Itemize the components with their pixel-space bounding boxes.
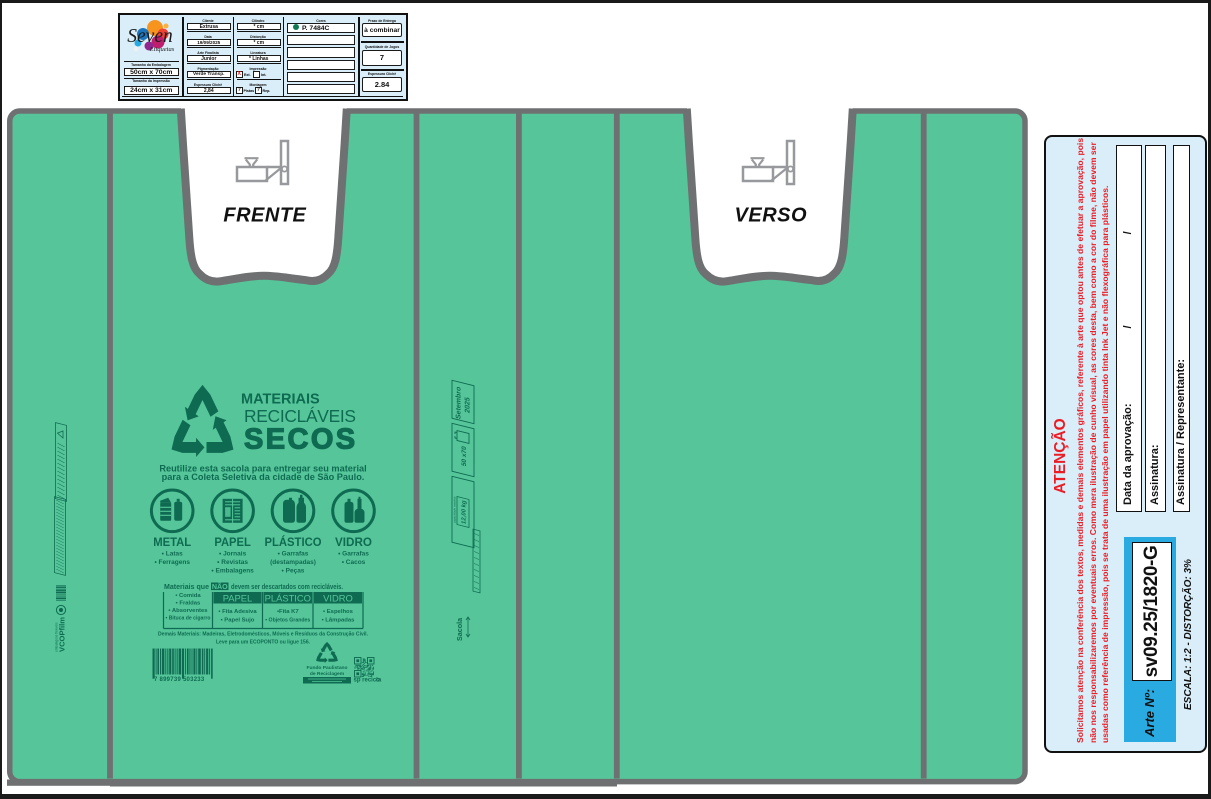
svg-text:• Lâmpadas: • Lâmpadas [322, 618, 356, 624]
svg-text:Materiais que: Materiais que [164, 582, 209, 591]
svg-text:FRENTE: FRENTE [223, 205, 306, 227]
svg-text:• Ferragens: • Ferragens [154, 559, 190, 566]
svg-text:• Fraldas: • Fraldas [176, 601, 201, 607]
svg-text:SECOS: SECOS [244, 424, 358, 456]
svg-text:para a Coleta Seletiva da cida: para a Coleta Seletiva da cidade de São … [162, 472, 365, 482]
svg-text:• Bituca de cigarro: • Bituca de cigarro [166, 616, 211, 622]
svg-text:50 x70: 50 x70 [461, 445, 468, 467]
svg-text:PLÁSTICO: PLÁSTICO [265, 593, 311, 604]
svg-text:embalagens flexiveis: embalagens flexiveis [55, 622, 59, 652]
svg-text:PAPEL: PAPEL [223, 593, 253, 604]
svg-text:• Peças: • Peças [282, 568, 305, 575]
svg-text:• Absorventes: • Absorventes [168, 608, 208, 614]
svg-text:METAL: METAL [153, 535, 191, 549]
svg-text:Leve para um ECOPONTO ou ligue: Leve para um ECOPONTO ou ligue 156. [216, 640, 311, 646]
svg-text:devem ser descartados com reci: devem ser descartados com recicláveis. [231, 582, 343, 591]
svg-text:Fundo Paulistano: Fundo Paulistano [306, 665, 347, 671]
svg-text:• Embalagens: • Embalagens [211, 568, 254, 575]
svg-text:• Garrafas: • Garrafas [278, 551, 309, 558]
svg-text:de Reciclagem: de Reciclagem [310, 671, 345, 677]
svg-text:2025: 2025 [464, 396, 472, 414]
svg-text:Demais Materiais: Madeiras, El: Demais Materiais: Madeiras, Eletrodomést… [158, 632, 369, 638]
svg-text:• Papel Sujo: • Papel Sujo [221, 618, 255, 624]
svg-text:• Jornais: • Jornais [219, 551, 247, 558]
svg-text:• Revistas: • Revistas [217, 559, 248, 566]
svg-text:• Latas: • Latas [162, 551, 183, 558]
svg-text:•Fita K7: •Fita K7 [277, 609, 299, 615]
svg-text:PAPEL: PAPEL [214, 535, 251, 549]
svg-text:NÃO: NÃO [212, 582, 228, 591]
svg-text:7 899739 503233: 7 899739 503233 [154, 677, 205, 683]
svg-text:• Comida: • Comida [175, 593, 201, 599]
svg-text:VIDRO: VIDRO [323, 593, 353, 604]
svg-text:VERSO: VERSO [735, 205, 808, 227]
svg-text:capacidade maxima: capacidade maxima [453, 496, 457, 524]
svg-text:• Espelhos: • Espelhos [323, 609, 354, 615]
svg-text:• Garrafas: • Garrafas [338, 551, 369, 558]
svg-text:12,00 kg: 12,00 kg [461, 499, 468, 525]
svg-text:(destampadas): (destampadas) [270, 559, 316, 566]
svg-text:• Cacos: • Cacos [342, 559, 366, 566]
svg-text:• Objetos Grandes: • Objetos Grandes [265, 618, 311, 624]
svg-text:Sacola: Sacola [455, 617, 464, 641]
svg-text:VIDRO: VIDRO [335, 535, 372, 549]
svg-text:VCOPfilm: VCOPfilm [58, 617, 67, 652]
svg-text:Setembro: Setembro [455, 385, 463, 420]
svg-text:PLÁSTICO: PLÁSTICO [265, 535, 322, 549]
svg-text:• Fita Adesiva: • Fita Adesiva [218, 609, 257, 615]
